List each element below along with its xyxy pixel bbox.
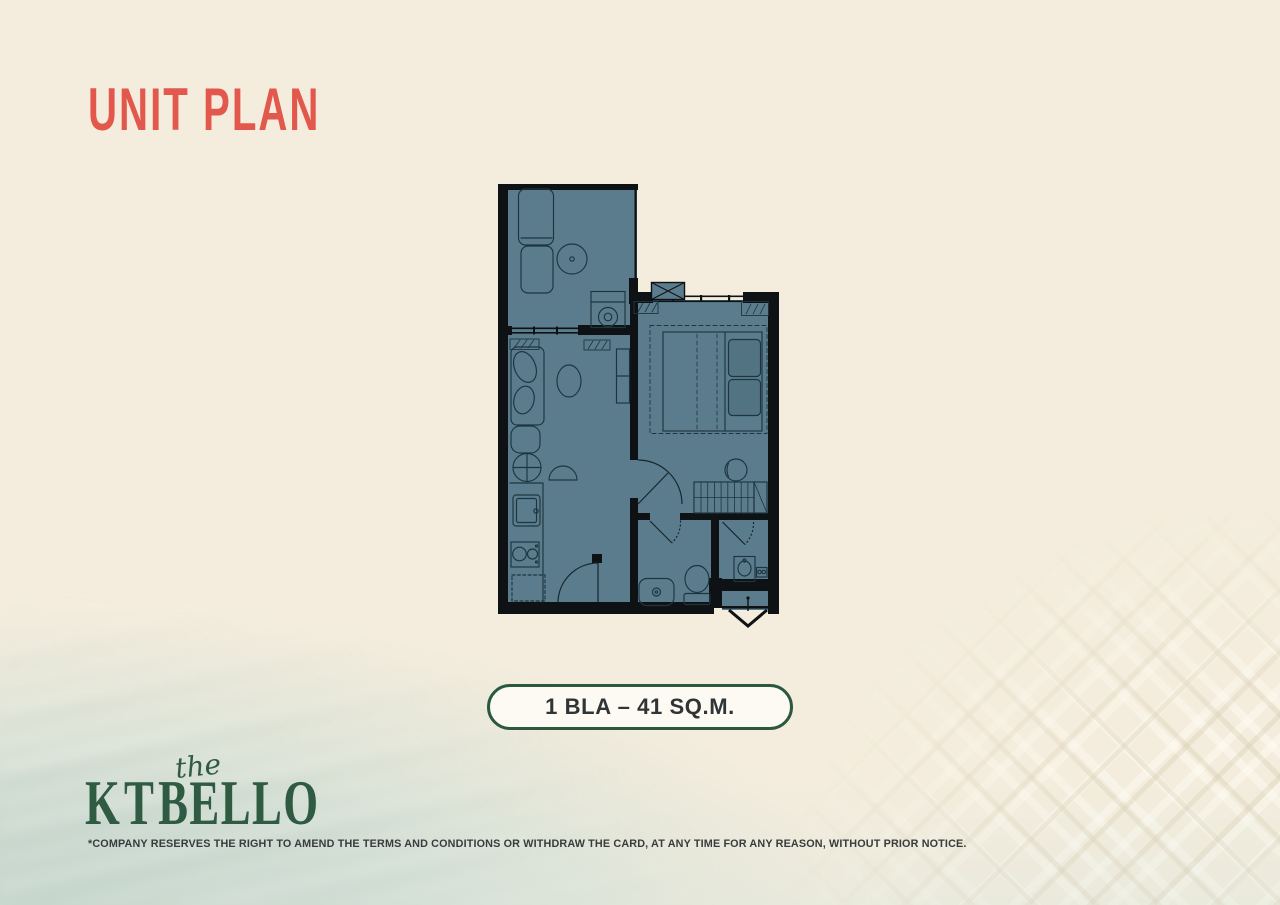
brochure-page: UNIT PLAN	[0, 0, 1280, 905]
logo-wordmark: K T BELLO	[85, 777, 267, 829]
unit-size-badge: 1 BLA – 41 SQ.M.	[487, 684, 793, 730]
brand-logo: the K T BELLO	[85, 752, 345, 829]
logo-letters-bello: BELLO	[158, 777, 319, 829]
floor-plan	[492, 178, 788, 643]
ac-unit	[652, 283, 685, 300]
unit-size-label: 1 BLA – 41 SQ.M.	[545, 694, 735, 720]
page-title: UNIT PLAN	[88, 80, 320, 140]
logo-letter-k: K	[85, 777, 121, 829]
disclaimer-text: *COMPANY RESERVES THE RIGHT TO AMEND THE…	[88, 838, 828, 850]
logo-letter-t: T	[124, 777, 155, 829]
